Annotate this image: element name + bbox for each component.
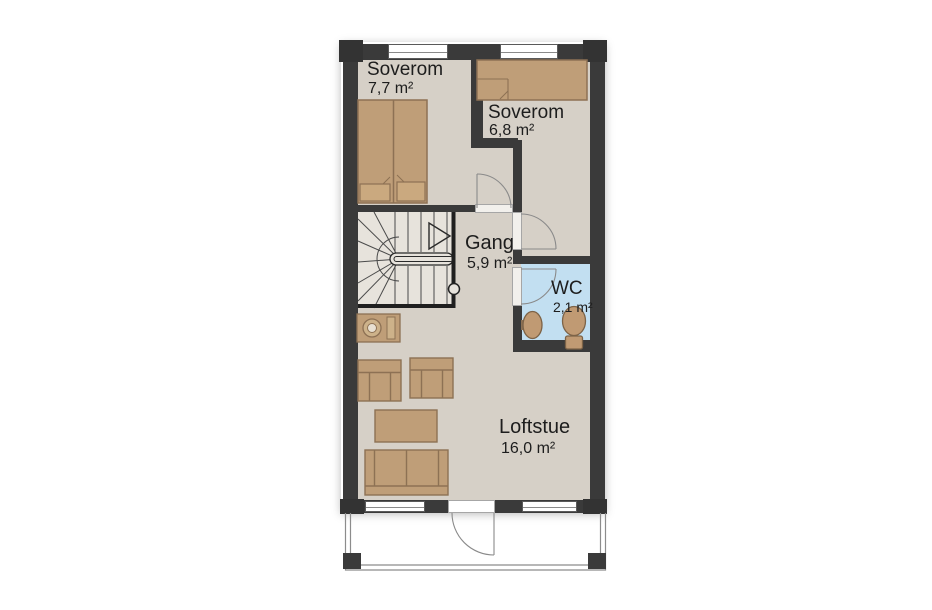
door-bedroom1 [477, 174, 511, 208]
washbasin-unit [357, 314, 400, 342]
double-bed [358, 100, 427, 203]
stair-newel-post [449, 284, 460, 295]
single-bed [477, 60, 587, 100]
room-label-soverom1: Soverom [367, 60, 443, 79]
room-area-gang: 5,9 m² [467, 256, 512, 272]
door-bedroom2 [521, 214, 556, 249]
sofa [365, 450, 448, 495]
coffee-table [375, 410, 437, 442]
balcony-post-left [343, 553, 361, 569]
room-label-wc: WC [551, 279, 583, 298]
armchair-1 [358, 360, 401, 401]
stair-handrail [390, 253, 453, 265]
room-area-loftstue: 16,0 m² [501, 441, 555, 457]
door-balcony [452, 513, 494, 555]
room-label-loftstue: Loftstue [499, 417, 570, 437]
room-area-soverom2: 6,8 m² [489, 123, 534, 139]
room-area-soverom1: 7,7 m² [368, 81, 413, 97]
room-label-gang: Gang [465, 233, 514, 253]
room-label-soverom2: Soverom [488, 103, 564, 122]
balcony [346, 513, 606, 570]
armchair-2 [410, 358, 453, 398]
wc-sink [521, 312, 542, 339]
plan-linework [0, 0, 932, 610]
room-area-wc: 2,1 m² [553, 300, 593, 314]
staircase [358, 212, 460, 308]
balcony-post-right [588, 553, 606, 569]
floor-plan-canvas: Soverom 7,7 m² Soverom 6,8 m² Gang 5,9 m… [0, 0, 932, 610]
